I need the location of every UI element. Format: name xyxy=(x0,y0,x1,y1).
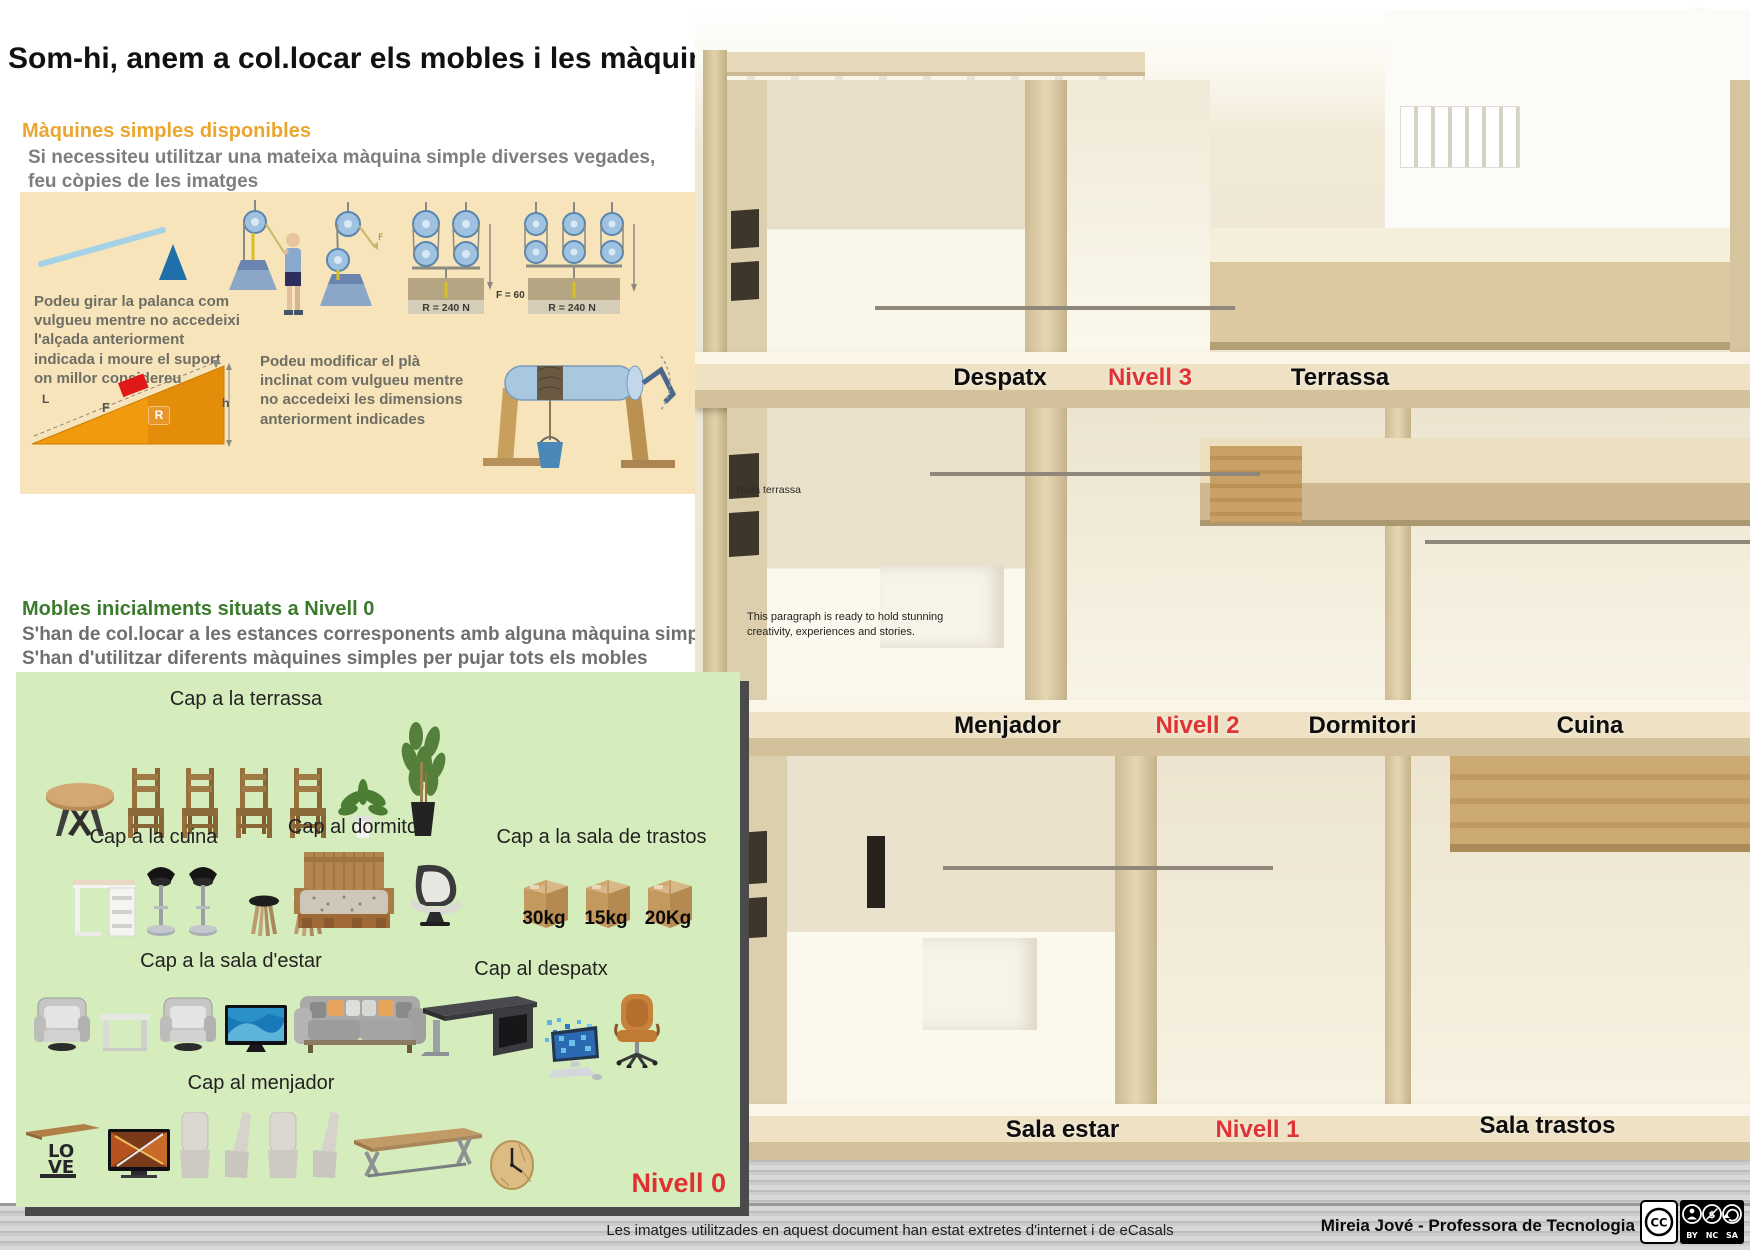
pulley-block6-icon[interactable] xyxy=(512,202,648,335)
by-nc-sa-icon: $ BY NC SA xyxy=(1680,1200,1744,1244)
author-credit-text: Mireia Jové - Professora de Tecnologia xyxy=(1290,1216,1635,1236)
window-slit xyxy=(729,511,759,557)
stool-dark-icon[interactable] xyxy=(245,890,283,938)
chair-upholstered-icon[interactable] xyxy=(178,1112,212,1180)
image-credit-text: Les imatges utilitzades en aquest docume… xyxy=(440,1222,1340,1239)
furniture-heading: Mobles inicialments situats a Nivell 0 xyxy=(22,598,374,621)
bar-stool-icon[interactable] xyxy=(143,864,179,938)
level-label-nivell-2: Nivell 2 xyxy=(1125,712,1270,740)
group-items-sala-estar xyxy=(32,980,426,1054)
chair-upholstered-side-icon[interactable] xyxy=(219,1112,259,1180)
box-weight-label: 30kg xyxy=(512,909,576,928)
box-weight-label: 20Kg xyxy=(636,909,700,928)
floor-slab-3 xyxy=(695,352,1750,408)
clock-wood-icon[interactable] xyxy=(489,1138,535,1192)
bar-table-icon[interactable] xyxy=(71,866,137,938)
level3-room-despatx xyxy=(767,80,1025,352)
group-label-dormitori: Cap al dormitori xyxy=(271,816,446,839)
group-items-despatx xyxy=(421,982,665,1082)
wood-block xyxy=(1210,446,1302,522)
level3-railing xyxy=(875,306,1235,310)
chair-upholstered-side-icon[interactable] xyxy=(307,1112,347,1180)
level3-terrassa xyxy=(1067,80,1210,352)
room-label-despatx: Despatx xyxy=(920,364,1080,392)
level-label-nivell-1: Nivell 1 xyxy=(1185,1116,1330,1144)
room-label-dormitori: Dormitori xyxy=(1285,712,1440,740)
office-chair-icon[interactable] xyxy=(609,994,665,1068)
level1-right-column xyxy=(1385,756,1411,1108)
bed-pallet-icon[interactable] xyxy=(294,852,394,930)
plane-height-label: h xyxy=(222,396,229,410)
group-label-cuina: Cap a la cuina xyxy=(46,826,261,849)
group-items-menjador: LOVE xyxy=(26,1098,535,1180)
window-slit xyxy=(731,261,759,301)
dark-window-slit xyxy=(867,836,885,908)
furniture-panel: Cap a la terrassa Cap a la cuina Cap al … xyxy=(16,672,740,1207)
box-icon[interactable]: 20Kg xyxy=(642,872,696,930)
group-label-despatx: Cap al despatx xyxy=(436,958,646,981)
machines-heading: Màquines simples disponibles xyxy=(22,120,311,143)
plane-force-label: F xyxy=(102,400,110,415)
tv-orange-icon[interactable] xyxy=(107,1128,171,1180)
svg-text:NC: NC xyxy=(1706,1231,1719,1240)
room-label-menjador: Menjador xyxy=(930,712,1085,740)
svg-text:CC: CC xyxy=(1651,1216,1668,1230)
svg-text:F: F xyxy=(378,233,383,243)
chair-upholstered-icon[interactable] xyxy=(266,1112,300,1180)
level1-railing xyxy=(943,866,1273,870)
room-label-sala-estar: Sala estar xyxy=(985,1116,1140,1144)
box-icon[interactable]: 15kg xyxy=(580,872,634,930)
console-love-icon[interactable]: LOVE xyxy=(26,1116,100,1180)
level-label-nivell-3: Nivell 3 xyxy=(1080,364,1220,392)
svg-text:BY: BY xyxy=(1686,1231,1698,1240)
inclined-plane-icon[interactable] xyxy=(28,350,233,455)
white-model-cube xyxy=(923,938,1037,1030)
simple-machines-panel: Podeu girar la palanca com vulgueu mentr… xyxy=(20,192,731,494)
level3-center-column xyxy=(1025,80,1067,352)
level2-railing-right xyxy=(1425,540,1750,544)
pulley4-load-label: R = 240 N xyxy=(408,302,484,314)
pulley-double-icon[interactable]: F xyxy=(312,202,390,337)
level2-room-menjador xyxy=(767,408,1025,700)
desk-dark-icon[interactable] xyxy=(421,994,539,1058)
taula-terrassa-note[interactable]: Taula terrassa xyxy=(735,484,801,496)
placeholder-paragraph[interactable]: This paragraph is ready to hold stunning… xyxy=(747,610,965,640)
furniture-rule-1: S'han de col.locar a les estances corres… xyxy=(22,624,715,646)
plane-note: Podeu modificar el plà inclinat com vulg… xyxy=(260,352,472,429)
armchair-silver-icon[interactable] xyxy=(158,994,218,1054)
group-label-trastos: Cap a la sala de trastos xyxy=(484,826,719,849)
level1-room-sala-estar xyxy=(787,756,1115,1108)
pulley-person-icon[interactable] xyxy=(225,200,325,339)
svg-text:SA: SA xyxy=(1726,1231,1739,1240)
computer-icon[interactable] xyxy=(545,1018,603,1082)
cc-icon: CC xyxy=(1640,1200,1678,1244)
machines-subheading: Si necessiteu utilitzar una mateixa màqu… xyxy=(28,146,668,194)
level2-center-column xyxy=(1025,408,1067,700)
level-label-nivell-0: Nivell 0 xyxy=(631,1168,726,1199)
room-label-cuina: Cuina xyxy=(1515,712,1665,740)
room-label-terrassa: Terrassa xyxy=(1265,364,1415,392)
level1-center-column xyxy=(1115,756,1157,1108)
sofa-gray-icon[interactable] xyxy=(294,992,426,1054)
activity-slide: Taula terrassa This paragraph is ready t… xyxy=(0,0,1750,1250)
group-label-menjador: Cap al menjador xyxy=(141,1072,381,1095)
level2-railing xyxy=(930,472,1260,476)
pulley-block4-icon[interactable] xyxy=(392,202,504,335)
bar-stool-icon[interactable] xyxy=(185,864,221,938)
armchair-silver-icon[interactable] xyxy=(32,994,92,1054)
group-items-cuina xyxy=(71,862,327,938)
side-table-icon[interactable] xyxy=(98,1004,152,1054)
model-ceiling xyxy=(703,52,1145,76)
group-label-terrassa: Cap a la terrassa xyxy=(56,688,436,711)
room-label-sala-trastos: Sala trastos xyxy=(1465,1112,1630,1140)
box-weight-label: 15kg xyxy=(574,909,638,928)
tv-blue-icon[interactable] xyxy=(224,1004,288,1054)
cc-license-badge[interactable]: CC $ BY NC SA xyxy=(1640,1200,1744,1244)
pulley6-load-label: R = 240 N xyxy=(532,302,612,314)
group-items-dormitori xyxy=(294,850,466,930)
windlass-icon[interactable] xyxy=(475,332,680,487)
house-model-photo: Taula terrassa This paragraph is ready t… xyxy=(695,10,1750,1160)
lounge-chair-icon[interactable] xyxy=(404,864,466,930)
group-items-trastos: 30kg15kg20Kg xyxy=(518,868,696,930)
level1-wood-shelf xyxy=(1450,756,1750,852)
plane-load-label: R xyxy=(148,406,170,425)
window-slit xyxy=(731,209,759,249)
plane-length-label: L xyxy=(42,392,49,406)
group-label-sala-estar: Cap a la sala d'estar xyxy=(111,950,351,973)
dining-table-icon[interactable] xyxy=(354,1122,482,1180)
model-roof-slab xyxy=(1210,228,1750,350)
furniture-rule-2: S'han d'utilitzar diferents màquines sim… xyxy=(22,648,648,670)
model-roof-slats xyxy=(1400,106,1520,168)
box-icon[interactable]: 30kg xyxy=(518,872,572,930)
lever-icon[interactable] xyxy=(35,222,203,289)
